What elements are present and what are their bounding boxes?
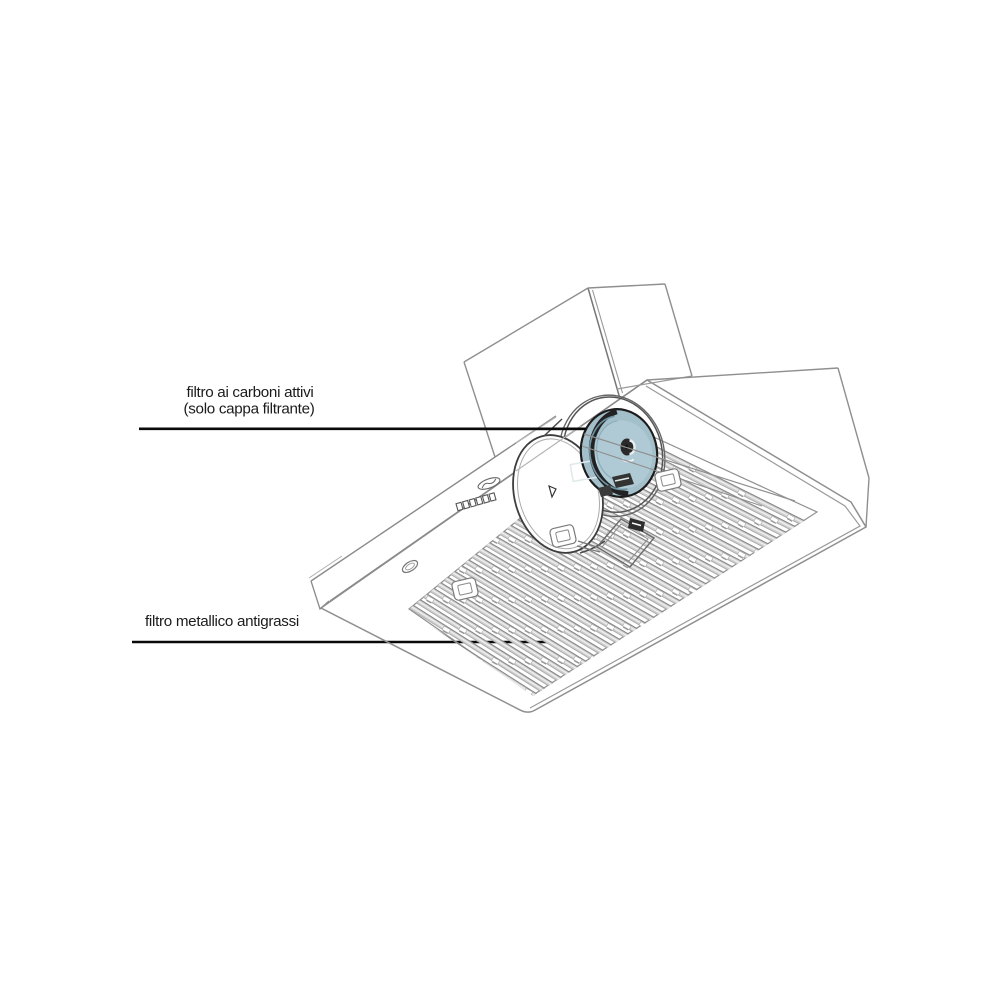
svg-text:filtro metallico antigrassi: filtro metallico antigrassi xyxy=(145,613,299,630)
svg-text:(solo cappa filtrante): (solo cappa filtrante) xyxy=(184,401,315,418)
svg-text:filtro ai carboni attivi: filtro ai carboni attivi xyxy=(186,384,313,401)
